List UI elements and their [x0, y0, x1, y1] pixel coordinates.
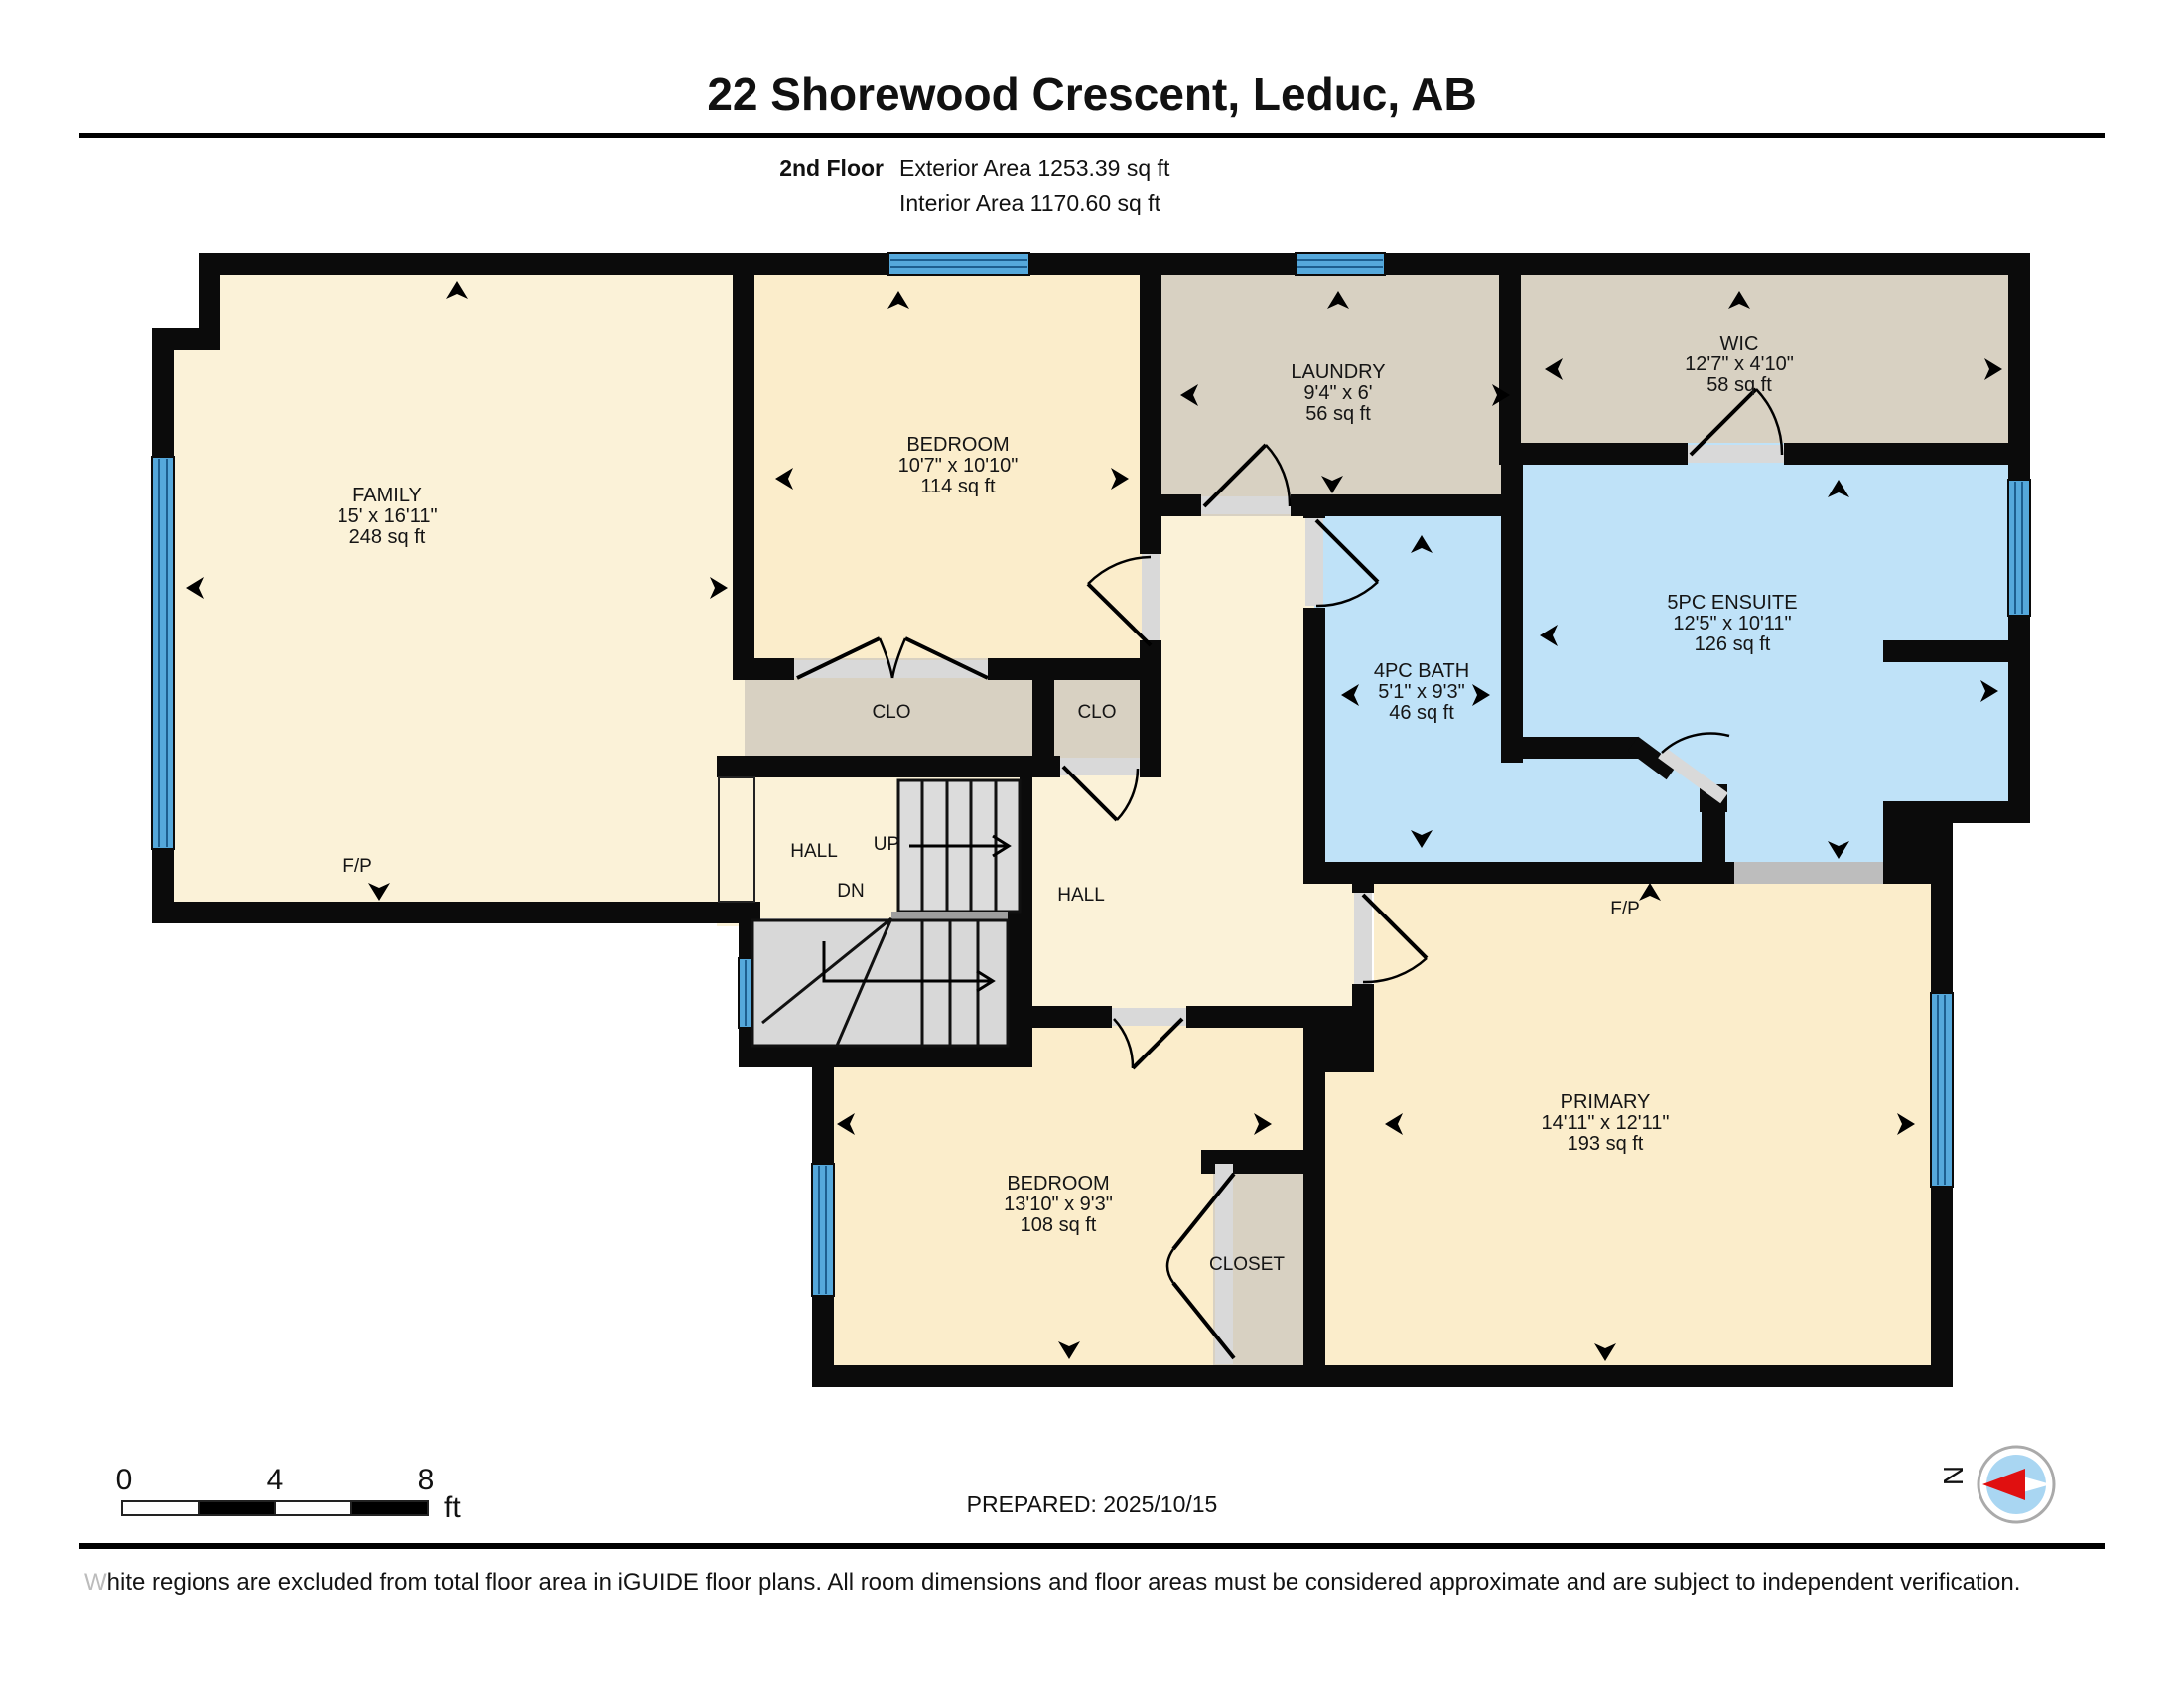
- header-divider: [79, 133, 2105, 138]
- window: [152, 457, 174, 849]
- room-label-primary: PRIMARY 14'11" x 12'11" 193 sq ft: [1542, 1092, 1670, 1155]
- disclaimer-first-letter: W: [84, 1569, 107, 1596]
- disclaimer: White regions are excluded from total fl…: [84, 1569, 2100, 1597]
- room-label-laundry: LAUNDRY 9'4" x 6' 56 sq ft: [1291, 362, 1385, 425]
- label-dn: DN: [837, 881, 864, 903]
- room-label-bedroom-bottom: BEDROOM 13'10" x 9'3" 108 sq ft: [1004, 1174, 1113, 1236]
- label-hall-left: HALL: [790, 841, 838, 863]
- room-label-bath: 4PC BATH 5'1" x 9'3" 46 sq ft: [1374, 661, 1469, 724]
- prepared-date: PREPARED: 2025/10/15: [0, 1491, 2184, 1518]
- page-title: 22 Shorewood Crescent, Leduc, AB: [0, 68, 2184, 121]
- exterior-area: Exterior Area 1253.39 sq ft: [899, 155, 1169, 182]
- room-family: [159, 258, 754, 918]
- label-hall-center: HALL: [1057, 885, 1105, 907]
- label-closet: CLOSET: [1209, 1254, 1285, 1276]
- fireplace-primary: [1734, 862, 1883, 884]
- label-up: UP: [874, 834, 899, 856]
- north-label: N: [1938, 1466, 1970, 1485]
- floor-label: 2nd Floor: [596, 155, 884, 182]
- floor-plan-page: 22 Shorewood Crescent, Leduc, AB 2nd Flo…: [0, 0, 2184, 1688]
- label-clo-left: CLO: [872, 702, 910, 724]
- window: [1296, 253, 1385, 275]
- window: [888, 253, 1029, 275]
- label-fireplace-primary: F/P: [1610, 899, 1640, 920]
- footer-divider: [79, 1543, 2105, 1549]
- floor-plan-drawing: [0, 0, 2184, 1688]
- label-fireplace-family: F/P: [342, 856, 372, 878]
- label-clo-right: CLO: [1077, 702, 1116, 724]
- window: [812, 1164, 834, 1296]
- interior-area: Interior Area 1170.60 sq ft: [899, 190, 1160, 216]
- cased-opening: [719, 777, 754, 902]
- room-label-family: FAMILY 15' x 16'11" 248 sq ft: [337, 486, 437, 548]
- room-label-wic: WIC 12'7" x 4'10" 58 sq ft: [1685, 334, 1794, 396]
- room-label-ensuite: 5PC ENSUITE 12'5" x 10'11" 126 sq ft: [1667, 593, 1797, 655]
- window: [1931, 993, 1953, 1187]
- window: [2008, 480, 2030, 616]
- room-label-bedroom-top: BEDROOM 10'7" x 10'10" 114 sq ft: [898, 435, 1019, 497]
- disclaimer-text: hite regions are excluded from total flo…: [107, 1569, 2021, 1596]
